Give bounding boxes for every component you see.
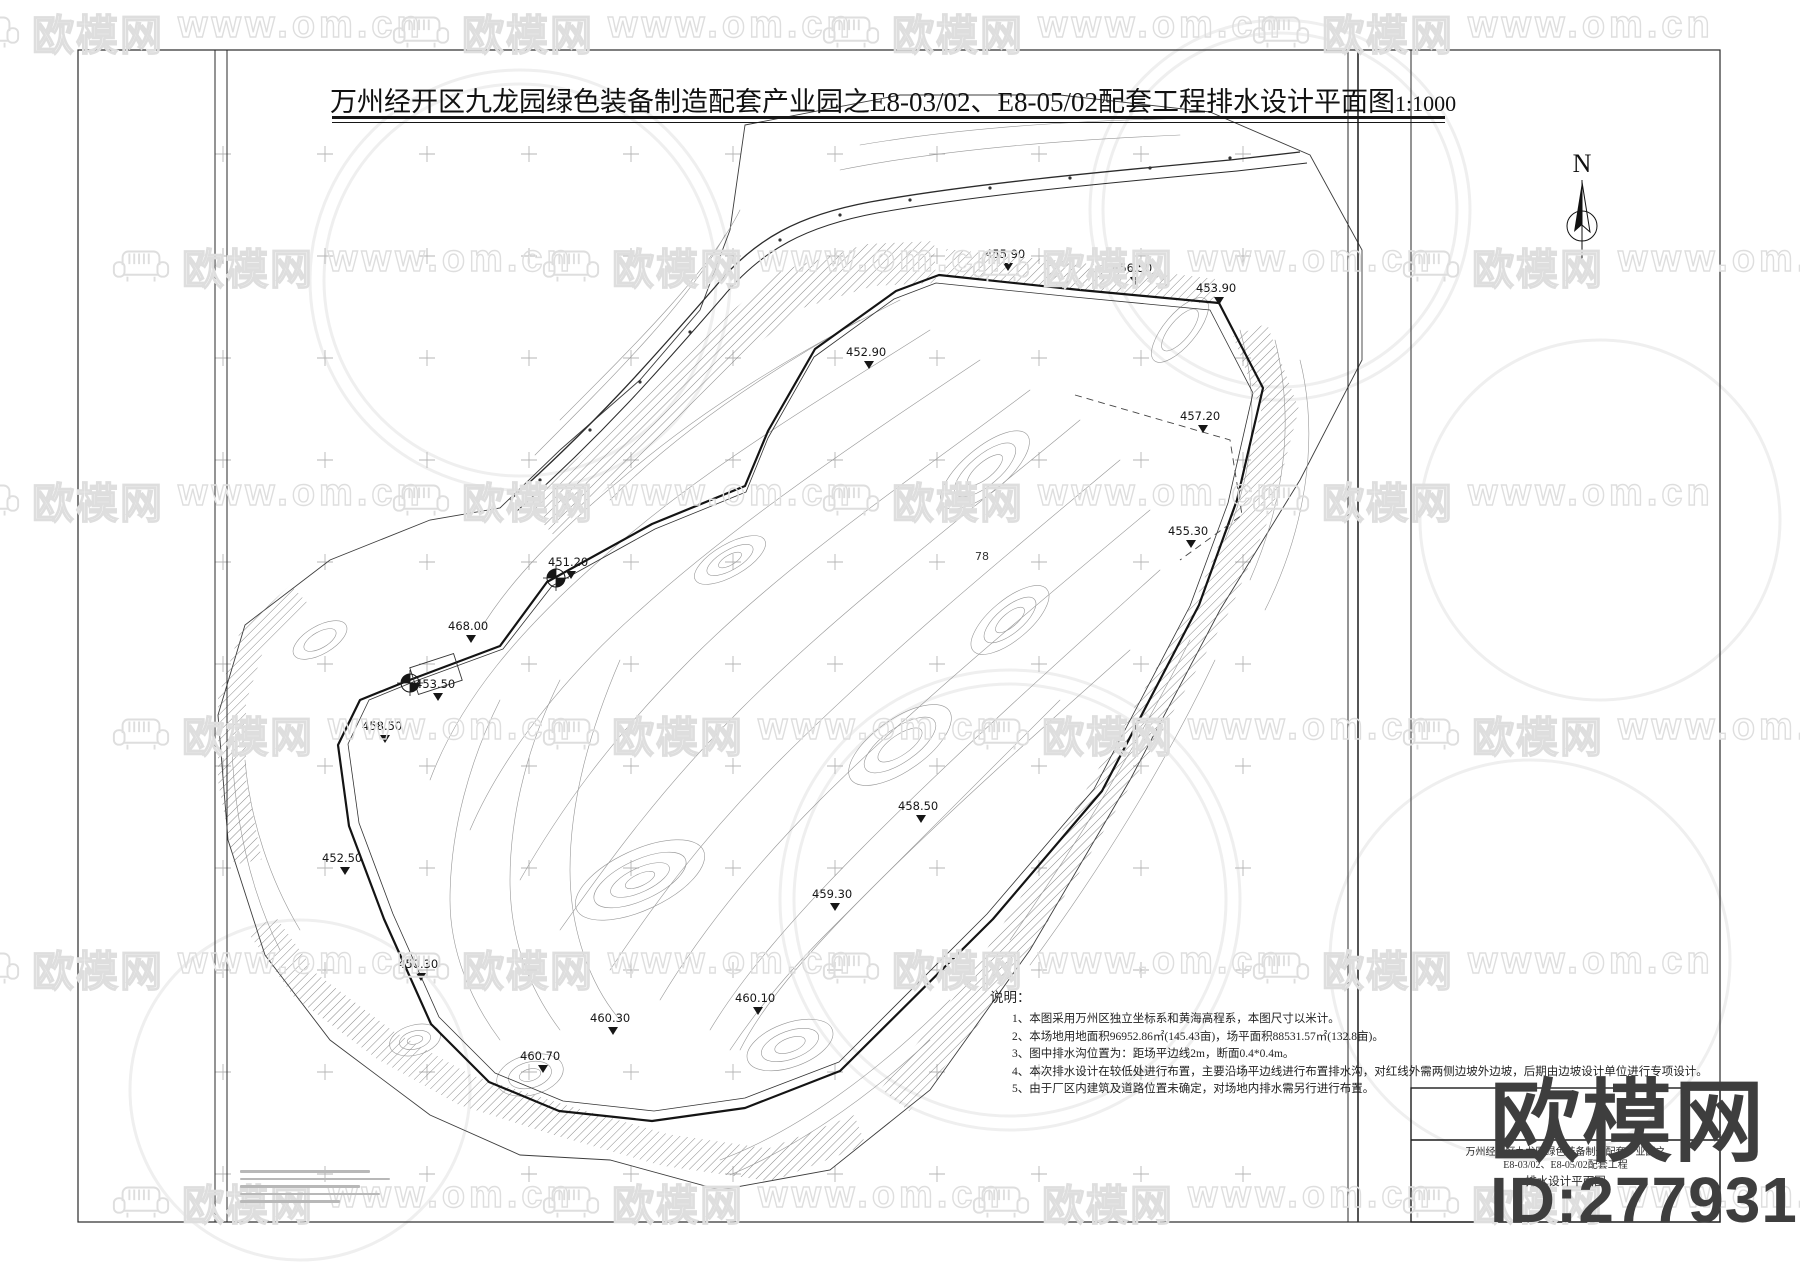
spot-elevation-label: 453.90 — [1196, 281, 1236, 295]
spot-elevation-marker-icon — [753, 1007, 763, 1015]
spot-elevation-label: 451.20 — [548, 555, 588, 569]
title-underline-thick — [332, 116, 1445, 119]
image-id-text: ID:2779310 — [1490, 1168, 1800, 1232]
small-note-line — [240, 1200, 340, 1203]
small-note-line — [240, 1193, 380, 1196]
spot-elevation-label: 459.30 — [812, 887, 852, 901]
misc-labels: 78 — [975, 550, 989, 563]
spot-elevation-marker-icon — [433, 693, 443, 701]
note-item: 1、本图采用万州区独立坐标系和黄海高程系，本图尺寸以米计。 — [990, 1011, 1708, 1029]
spot-elevation-label: 457.20 — [1180, 409, 1220, 423]
small-notes-block — [240, 1170, 390, 1208]
north-label: N — [1573, 149, 1592, 178]
note-item: 3、图中排水沟位置为：距场平边线2m，断面0.4*0.4m。 — [990, 1046, 1708, 1064]
spot-elevation-label: 455.30 — [1168, 524, 1208, 538]
watermark-brand-block: 欧模网 ID:2779310 — [1490, 1078, 1800, 1232]
small-note-line — [240, 1178, 390, 1181]
notes-heading: 说明： — [990, 986, 1708, 1006]
title-underline-thin — [332, 122, 1445, 123]
spot-elevation-label: 452.90 — [846, 345, 886, 359]
benchmark-symbol-icon — [397, 670, 423, 696]
note-item: 2、本场地用地面积96952.86㎡(145.43亩)，场平面积88531.57… — [990, 1029, 1708, 1047]
drawing-title: 万州经开区九龙园绿色装备制造配套产业园之E8-03/02、E8-05/02配套工… — [330, 80, 1456, 119]
brand-logo-text: 欧模网 — [1490, 1078, 1800, 1168]
spot-elevation-marker-icon — [416, 973, 426, 981]
north-arrow: N — [1567, 149, 1597, 264]
spot-elevation-marker-icon — [1198, 425, 1208, 433]
plan-label: 78 — [975, 550, 989, 563]
spot-elevation-label: 456.50 — [1112, 261, 1152, 275]
spot-elevation-marker-icon — [830, 903, 840, 911]
spot-elevation-marker-icon — [916, 815, 926, 823]
small-note-line — [240, 1185, 360, 1188]
spot-elevation-marker-icon — [466, 635, 476, 643]
spot-elevation-label: 458.50 — [898, 799, 938, 813]
spot-elevation-label: 450.30 — [398, 957, 438, 971]
cad-sheet: 455.90456.50453.90452.90457.20455.30468.… — [0, 0, 1800, 1273]
spot-elevation-label: 453.50 — [415, 677, 455, 691]
spot-elevation-marker-icon — [608, 1027, 618, 1035]
spot-elevation-label: 460.70 — [520, 1049, 560, 1063]
spot-elevation-label: 458.50 — [362, 719, 402, 733]
spot-elevation-label: 468.00 — [448, 619, 488, 633]
spot-elevation-marker-icon — [340, 867, 350, 875]
spot-elevation-labels: 455.90456.50453.90452.90457.20455.30468.… — [322, 247, 1236, 1073]
drawing-scale: 1:1000 — [1395, 91, 1456, 116]
spot-elevation-marker-icon — [864, 361, 874, 369]
small-note-line — [240, 1170, 370, 1173]
spot-elevation-marker-icon — [1214, 297, 1224, 305]
spot-elevation-label: 460.10 — [735, 991, 775, 1005]
spot-elevation-marker-icon — [538, 1065, 548, 1073]
spot-elevation-label: 460.30 — [590, 1011, 630, 1025]
drawing-title-text: 万州经开区九龙园绿色装备制造配套产业园之E8-03/02、E8-05/02配套工… — [330, 87, 1395, 117]
spot-elevation-label: 452.50 — [322, 851, 362, 865]
spot-elevation-marker-icon — [380, 735, 390, 743]
spot-elevation-label: 455.90 — [985, 247, 1025, 261]
spot-elevation-marker-icon — [1186, 540, 1196, 548]
